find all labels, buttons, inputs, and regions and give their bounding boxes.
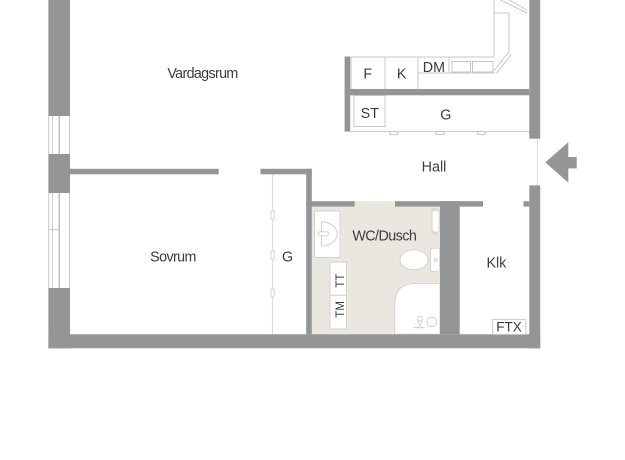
svg-text:Klk: Klk [486, 256, 507, 272]
svg-text:K: K [397, 66, 407, 82]
svg-text:Sovrum: Sovrum [150, 250, 196, 266]
svg-text:F: F [363, 67, 372, 83]
svg-text:Hall: Hall [422, 160, 447, 176]
svg-text:Vardagsrum: Vardagsrum [167, 66, 237, 82]
svg-text:FTX: FTX [496, 319, 522, 334]
svg-text:G: G [282, 250, 293, 266]
svg-text:ST: ST [361, 106, 380, 122]
svg-text:G: G [440, 107, 451, 123]
svg-text:DM: DM [423, 60, 445, 76]
svg-text:TM: TM [335, 301, 347, 318]
svg-text:WC/Dusch: WC/Dusch [352, 229, 417, 245]
svg-text:TT: TT [335, 274, 347, 288]
